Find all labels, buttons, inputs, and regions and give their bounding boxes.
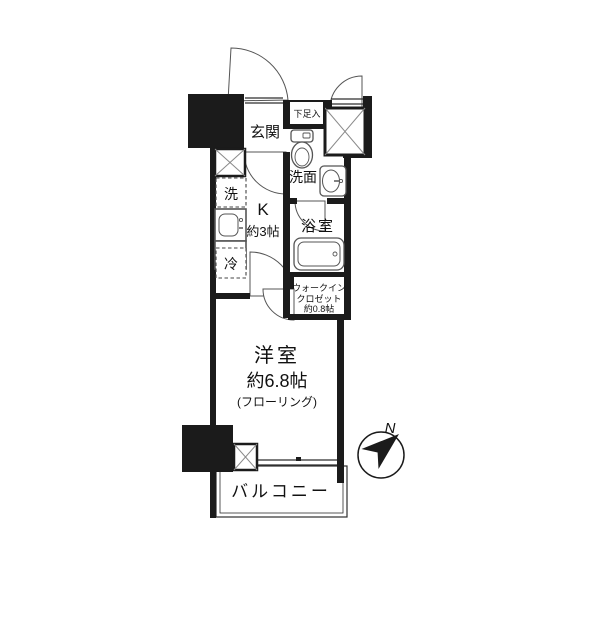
kitchen-door-arc <box>244 152 286 194</box>
wall-washroom-bath-left <box>283 198 297 204</box>
kitchen-size: 約3帖 <box>246 224 279 239</box>
pipe-space-box-top <box>215 149 245 176</box>
fridge-box: 冷 <box>216 248 246 278</box>
closet-label-line1: ウォークイン <box>292 283 346 293</box>
bathroom-label: 浴室 <box>301 218 335 235</box>
washer-label: 洗 <box>224 186 238 202</box>
main-room-size: 約6.8帖 <box>246 371 307 391</box>
pillar-top-left <box>188 94 244 148</box>
kitchen-label: K <box>257 200 269 219</box>
meter-box-top-right <box>325 108 365 155</box>
pillar-bottom-left <box>182 425 233 472</box>
genkan-label: 玄関 <box>250 124 280 141</box>
shoe-cabinet: 下足入 <box>289 101 324 125</box>
pipe-space-box-bottom <box>234 444 257 470</box>
main-room-label: 洋室 <box>254 344 300 367</box>
balcony-window <box>256 457 342 465</box>
closet-label-line3: 約0.8帖 <box>304 303 335 314</box>
closet-label-line2: クロゼット <box>296 293 341 304</box>
balcony-label: バルコニー <box>231 482 331 501</box>
kitchen-sink-icon <box>215 209 246 241</box>
wall-kitchen-room <box>210 293 250 299</box>
toilet-icon <box>291 130 313 168</box>
fridge-label: 冷 <box>224 256 238 272</box>
floor-plan-drawing: 下足入 洗 冷 玄関 洗面 浴室 K 約3帖 ウォーク <box>0 0 614 617</box>
washbasin-icon <box>320 166 346 196</box>
bathtub-icon <box>294 238 344 270</box>
compass: N <box>358 420 404 478</box>
entrance-door-arc <box>228 48 288 101</box>
washer-box: 洗 <box>216 178 246 207</box>
meter-box-door-arc <box>330 76 362 108</box>
shoe-cabinet-label: 下足入 <box>293 109 320 119</box>
floor-plan: 下足入 洗 冷 玄関 洗面 浴室 K 約3帖 ウォーク <box>0 0 614 617</box>
main-room-note: (フローリング) <box>237 395 317 409</box>
wall-bath-closet <box>288 272 350 277</box>
washroom-label: 洗面 <box>289 169 317 185</box>
wall-room-right <box>337 318 344 483</box>
north-label: N <box>385 420 396 437</box>
